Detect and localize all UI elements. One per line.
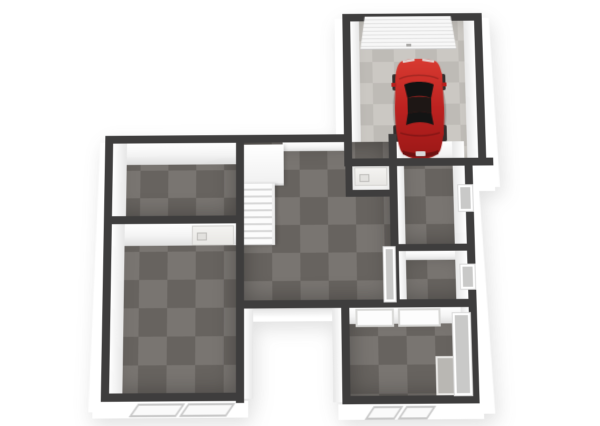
central-east-glass-panel bbox=[384, 247, 396, 301]
window-pane bbox=[129, 403, 186, 417]
bottom-right-south-wall bbox=[342, 395, 479, 404]
window-pane bbox=[179, 403, 236, 417]
door-handle-icon bbox=[359, 174, 369, 182]
garage-door-handle-icon bbox=[406, 44, 411, 47]
room-bottom-left bbox=[109, 223, 236, 393]
room-right-lower-west-face bbox=[399, 251, 407, 299]
right-rooms-divider-wall bbox=[391, 244, 476, 252]
door-handle-icon bbox=[197, 233, 207, 241]
floorplan-3d-render bbox=[0, 6, 600, 426]
bottom-left-south-wall bbox=[101, 393, 244, 402]
bottom-right-north-window-2 bbox=[398, 308, 441, 327]
bottom-right-north-window-1 bbox=[355, 309, 394, 328]
bottom-left-south-window bbox=[133, 403, 230, 417]
bottom-right-south-window bbox=[369, 406, 432, 420]
notch-north-exterior-face bbox=[244, 308, 341, 322]
garage-door bbox=[360, 16, 456, 50]
room-right-lower bbox=[399, 251, 469, 300]
left-vertical-divider-wall bbox=[236, 135, 244, 403]
room-central-north-face bbox=[283, 142, 346, 151]
room-top-left-north-face bbox=[113, 143, 236, 165]
left-rooms-divider-wall bbox=[104, 215, 244, 224]
bottom-right-west-wall bbox=[341, 300, 351, 405]
room-top-left-west-face bbox=[112, 144, 127, 217]
right-lower-east-window bbox=[460, 265, 475, 289]
bottom-right-east-glass-panel bbox=[453, 313, 473, 395]
garage-southeast-exterior-band bbox=[473, 165, 496, 191]
bottom-left-room-door bbox=[192, 225, 234, 245]
staircase bbox=[242, 184, 275, 246]
floorplan-canvas bbox=[0, 0, 600, 426]
right-upper-east-window bbox=[458, 185, 473, 211]
window-pane bbox=[397, 406, 436, 420]
closet-south-wall bbox=[346, 190, 394, 197]
room-bottom-left-west-face bbox=[109, 224, 125, 393]
room-top-left bbox=[112, 143, 236, 216]
house-north-wall bbox=[105, 134, 351, 143]
red-sports-car bbox=[391, 58, 449, 161]
stair-landing bbox=[242, 144, 284, 185]
central-south-wall bbox=[236, 299, 477, 309]
closet-garage-door bbox=[354, 167, 387, 186]
notch-west-exterior-face bbox=[244, 308, 253, 398]
